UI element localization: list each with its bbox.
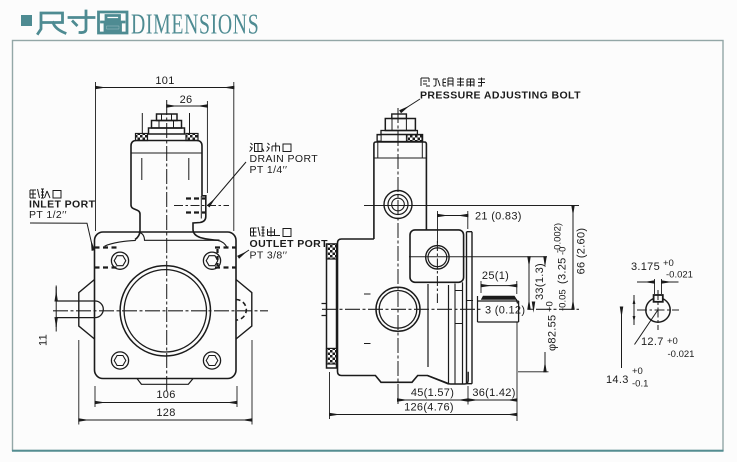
svg-text:OUTLET PORT: OUTLET PORT [250, 238, 329, 250]
svg-text:-0.1: -0.1 [632, 379, 648, 390]
svg-text:+0: +0 [667, 336, 678, 347]
svg-text:26: 26 [180, 94, 193, 106]
svg-text:φ82.55: φ82.55 [547, 315, 559, 351]
svg-text:3 (0.12): 3 (0.12) [485, 305, 525, 317]
svg-text:21 (0.83): 21 (0.83) [475, 211, 522, 223]
svg-text:-0.021: -0.021 [666, 270, 693, 281]
svg-text:3.175: 3.175 [631, 261, 660, 273]
svg-text:45(1.57): 45(1.57) [411, 387, 454, 399]
svg-text:PT 1/2′′: PT 1/2′′ [29, 209, 67, 221]
svg-text:+0: +0 [545, 301, 556, 312]
svg-text:33(1.3): 33(1.3) [534, 263, 546, 300]
svg-text:11: 11 [38, 334, 50, 346]
svg-text:36(1.42): 36(1.42) [472, 387, 515, 399]
svg-text:-0.05: -0.05 [558, 289, 569, 311]
svg-text:(3.25: (3.25 [557, 257, 569, 284]
svg-text:126(4.76): 126(4.76) [404, 402, 454, 414]
svg-text:25(1): 25(1) [482, 270, 509, 282]
svg-text:14.3: 14.3 [606, 374, 629, 386]
svg-text:-0.002): -0.002) [553, 223, 564, 253]
svg-text:128: 128 [156, 407, 175, 419]
svg-text:-0.021: -0.021 [668, 349, 695, 360]
svg-text:66 (2.60): 66 (2.60) [576, 228, 588, 275]
svg-text:106: 106 [156, 389, 175, 401]
svg-text:PT 3/8′′: PT 3/8′′ [250, 250, 288, 262]
svg-text:+0: +0 [663, 258, 674, 269]
svg-text:DIMENSIONS: DIMENSIONS [131, 9, 259, 41]
svg-text:+0: +0 [632, 366, 643, 377]
svg-text:PRESSURE ADJUSTING BOLT: PRESSURE ADJUSTING BOLT [420, 90, 581, 102]
svg-text:12.7: 12.7 [641, 336, 664, 348]
svg-text:101: 101 [155, 75, 174, 87]
svg-text:PT 1/4′′: PT 1/4′′ [250, 164, 288, 176]
